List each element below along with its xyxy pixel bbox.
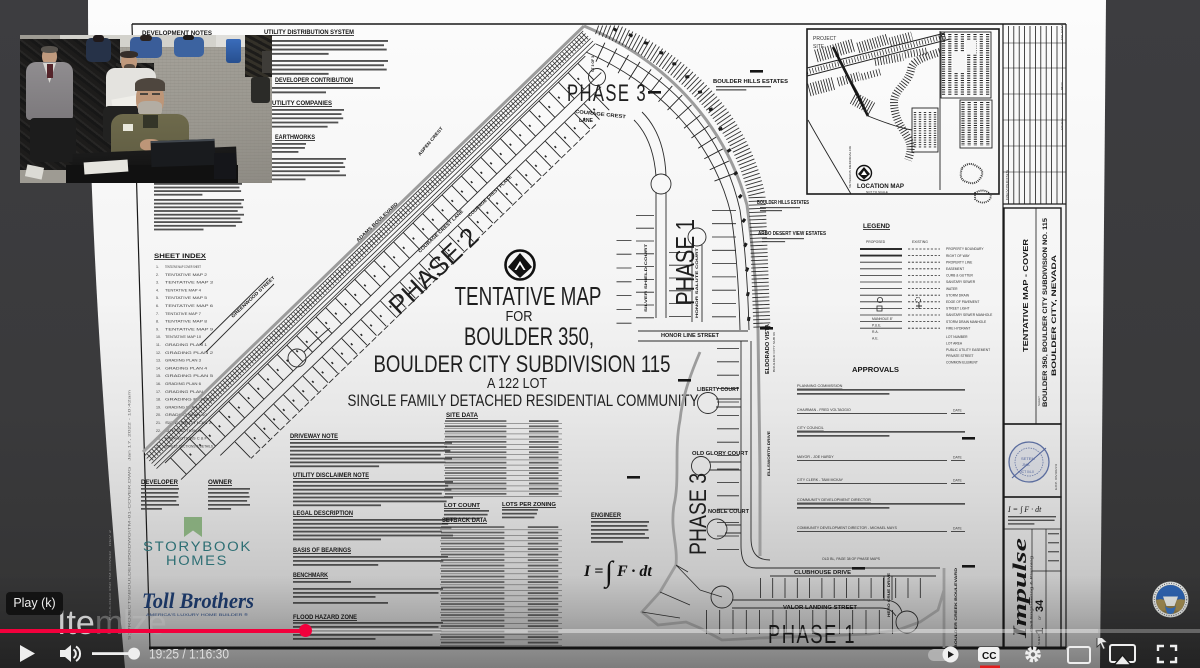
svg-text:TENTATIVE MAP: TENTATIVE MAP — [455, 281, 602, 311]
svg-text:17.: 17. — [156, 390, 161, 394]
svg-text:ENGINEER: ENGINEER — [591, 513, 622, 519]
svg-text:SANITARY SEWER: SANITARY SEWER — [946, 280, 976, 284]
svg-text:1.: 1. — [156, 265, 159, 269]
svg-text:3.: 3. — [156, 281, 159, 285]
svg-text:BOULDER HILLS ESTATES: BOULDER HILLS ESTATES — [757, 200, 810, 206]
svg-text:ARBO DESERT VIEW ESTATES: ARBO DESERT VIEW ESTATES — [758, 231, 827, 237]
svg-text:13.: 13. — [156, 359, 161, 363]
svg-text:21.: 21. — [156, 421, 161, 425]
svg-text:DEVELOPER CONTRIBUTION: DEVELOPER CONTRIBUTION — [275, 77, 353, 84]
svg-text:NOBLE COURT: NOBLE COURT — [708, 509, 749, 515]
svg-text:OLD GLORY COURT: OLD GLORY COURT — [692, 451, 748, 457]
svg-text:SANITARY SEWER MANHOLE: SANITARY SEWER MANHOLE — [946, 313, 993, 317]
svg-text:STORM DRAIN: STORM DRAIN — [946, 293, 970, 297]
svg-text:10.: 10. — [156, 335, 161, 339]
svg-text:CITY COUNCIL: CITY COUNCIL — [797, 426, 824, 430]
svg-text:R.A.: R.A. — [872, 330, 879, 334]
svg-text:PHASE 3: PHASE 3 — [685, 473, 712, 555]
svg-text:LOTS PER ZONING: LOTS PER ZONING — [502, 502, 556, 508]
svg-text:APPROVALS: APPROVALS — [852, 365, 899, 374]
svg-text:GRADING PLAN 5: GRADING PLAN 5 — [165, 374, 213, 378]
svg-text:LOT COUNT: LOT COUNT — [444, 503, 480, 509]
svg-text:NOT TO SCALE: NOT TO SCALE — [866, 190, 888, 194]
svg-text:BY: BY — [1060, 81, 1064, 90]
svg-text:LEGEND: LEGEND — [863, 223, 891, 230]
svg-text:4.: 4. — [156, 288, 159, 292]
svg-text:SHEET INDEX: SHEET INDEX — [154, 253, 207, 260]
svg-text:MAYOR - JOE HARDY: MAYOR - JOE HARDY — [797, 455, 834, 459]
svg-text:GRADING PLAN 6: GRADING PLAN 6 — [165, 382, 201, 386]
svg-text:FIRE HYDRANT: FIRE HYDRANT — [946, 326, 970, 330]
svg-text:OCT 04-0: OCT 04-0 — [1019, 470, 1034, 474]
svg-text:OLD BL, PAGE 38 OF PHASE MAPS: OLD BL, PAGE 38 OF PHASE MAPS — [822, 557, 881, 561]
svg-text:UTILITY COMPANIES: UTILITY COMPANIES — [272, 100, 332, 107]
svg-text:HONOR LINE STREET: HONOR LINE STREET — [661, 333, 719, 339]
svg-text:PROPOSED: PROPOSED — [866, 240, 886, 244]
svg-text:BOULDER CITY, NEVADA: BOULDER CITY, NEVADA — [1051, 254, 1058, 376]
svg-text:5.: 5. — [156, 296, 159, 300]
svg-text:NO. DATE: NO. DATE — [1060, 24, 1064, 40]
svg-text:GRADING PLAN 2: GRADING PLAN 2 — [165, 351, 213, 355]
svg-text:9.: 9. — [156, 327, 159, 331]
svg-text:BOULDER 350, BOULDER CITY SUBD: BOULDER 350, BOULDER CITY SUBDIVISION NO… — [1042, 217, 1049, 407]
svg-text:TENTATIVE MAP COVER SHEET: TENTATIVE MAP COVER SHEET — [165, 265, 202, 269]
svg-text:P.U.E.: P.U.E. — [872, 324, 881, 328]
svg-text:18.: 18. — [156, 398, 161, 402]
svg-text:DATE: DATE — [953, 479, 963, 483]
svg-text:EASEMENT: EASEMENT — [946, 267, 964, 271]
svg-text:GRADING PLAN 3: GRADING PLAN 3 — [165, 359, 201, 363]
svg-text:STORYBOOK: STORYBOOK — [143, 539, 252, 554]
svg-text:UTILITY DISCLAIMER NOTE: UTILITY DISCLAIMER NOTE — [293, 473, 369, 479]
svg-text:EXISTING: EXISTING — [912, 240, 928, 244]
svg-text:TENTATIVE MAP 7: TENTATIVE MAP 7 — [165, 312, 201, 316]
svg-text:16.: 16. — [156, 382, 161, 386]
svg-text:6.: 6. — [156, 304, 159, 308]
svg-text:PLANNING COMMISSION: PLANNING COMMISSION — [797, 384, 843, 388]
svg-text:MANHOLE 8": MANHOLE 8" — [872, 317, 894, 321]
svg-text:SETBACK DATA: SETBACK DATA — [442, 518, 488, 524]
svg-text:DATE: DATE — [953, 456, 963, 460]
svg-text:7.: 7. — [156, 312, 159, 316]
svg-text:PRIVATE STREET: PRIVATE STREET — [946, 354, 974, 358]
svg-text:STREET LIGHT: STREET LIGHT — [946, 307, 970, 311]
svg-text:TENTATIVE MAP 10: TENTATIVE MAP 10 — [165, 335, 201, 339]
svg-text:CURB & GUTTER: CURB & GUTTER — [946, 274, 974, 278]
svg-text:DATE: DATE — [953, 409, 963, 413]
svg-text:BOULDER CITY SUBDIVISION 115: BOULDER CITY SUBDIVISION 115 — [374, 351, 671, 378]
svg-text:CC: CC — [982, 650, 997, 662]
svg-text:14.: 14. — [156, 366, 161, 370]
svg-text:PHASE 3: PHASE 3 — [567, 80, 647, 107]
svg-text:TENTATIVE MAP 5: TENTATIVE MAP 5 — [165, 296, 207, 300]
svg-text:19.: 19. — [156, 405, 161, 409]
svg-text:GRADING PLAN 4: GRADING PLAN 4 — [165, 366, 207, 370]
svg-text:8.: 8. — [156, 320, 159, 324]
svg-text:15.: 15. — [156, 374, 161, 378]
svg-text:DEVELOPER: DEVELOPER — [141, 480, 179, 486]
svg-text:DESC: DESC — [1060, 118, 1064, 130]
svg-text:TENTATIVE MAP 8: TENTATIVE MAP 8 — [165, 320, 207, 324]
svg-text:SITE DATA: SITE DATA — [446, 413, 479, 419]
svg-text:GRADING PLAN 1: GRADING PLAN 1 — [165, 343, 207, 347]
svg-text:PROPERTY LINE: PROPERTY LINE — [946, 260, 973, 264]
svg-text:LOT NUMBER: LOT NUMBER — [946, 335, 968, 339]
svg-text:CHAIRMAN - FRED VOLTAGGIO: CHAIRMAN - FRED VOLTAGGIO — [797, 408, 851, 412]
svg-text:VETERANS MEMORIAL DR: VETERANS MEMORIAL DR — [848, 146, 852, 188]
svg-text:COMMON ELEMENT: COMMON ELEMENT — [946, 361, 978, 365]
svg-text:12.: 12. — [156, 351, 161, 355]
svg-text:TENTATIVE MAP 3: TENTATIVE MAP 3 — [165, 281, 213, 285]
svg-text:COMMUNITY DEVELOPMENT DIRECTOR: COMMUNITY DEVELOPMENT DIRECTOR - MICHAEL… — [797, 526, 897, 530]
svg-text:HOMES: HOMES — [166, 553, 228, 568]
svg-text:A.E.: A.E. — [872, 337, 878, 341]
svg-text:22.: 22. — [156, 429, 161, 433]
svg-text:TENTATIVE MAP 9: TENTATIVE MAP 9 — [165, 327, 213, 331]
svg-text:ELLSWORTH DRIVE: ELLSWORTH DRIVE — [766, 431, 771, 476]
svg-text:EXP. 06/30/23: EXP. 06/30/23 — [1054, 464, 1058, 490]
svg-text:EARTHWORKS: EARTHWORKS — [275, 134, 315, 141]
svg-text:PROJECT: PROJECT — [813, 36, 836, 42]
svg-text:CITY CLERK - TAMI MCKAY: CITY CLERK - TAMI MCKAY — [797, 478, 844, 482]
svg-text:BOULDER 350,: BOULDER 350, — [464, 323, 594, 351]
svg-text:A 122 LOT: A 122 LOT — [487, 375, 547, 392]
svg-text:BASIS OF BEARINGS: BASIS OF BEARINGS — [293, 548, 351, 554]
svg-text:LANE: LANE — [579, 118, 594, 124]
svg-text:LIBERTY COURT: LIBERTY COURT — [697, 387, 739, 393]
svg-text:DRIVEWAY NOTE: DRIVEWAY NOTE — [290, 434, 338, 440]
svg-text:LEGAL DESCRIPTION: LEGAL DESCRIPTION — [293, 511, 353, 517]
svg-text:TENTATIVE MAP 6: TENTATIVE MAP 6 — [165, 304, 213, 308]
svg-text:19:25 / 1:16:30: 19:25 / 1:16:30 — [149, 647, 229, 662]
svg-text:RIGHT OF WAY: RIGHT OF WAY — [946, 254, 971, 258]
svg-text:EDGE OF PAVEMENT: EDGE OF PAVEMENT — [946, 300, 979, 304]
svg-text:UTILITY DISTRIBUTION SYSTEM: UTILITY DISTRIBUTION SYSTEM — [264, 29, 354, 36]
svg-text:WATER: WATER — [946, 287, 958, 291]
svg-text:BOULDER HILLS ESTATES: BOULDER HILLS ESTATES — [713, 79, 788, 85]
svg-text:STORM DRAIN MANHOLE: STORM DRAIN MANHOLE — [946, 320, 987, 324]
svg-text:TENTATIVE MAP 4: TENTATIVE MAP 4 — [165, 288, 201, 292]
svg-text:I = ∫ F · dt: I = ∫ F · dt — [1007, 505, 1042, 514]
svg-text:CT 3 OF 3: CT 3 OF 3 — [591, 56, 595, 72]
svg-text:TENTATIVE MAP - COVER: TENTATIVE MAP - COVER — [1023, 239, 1030, 352]
svg-text:PUBLIC UTILITY EASEMENT: PUBLIC UTILITY EASEMENT — [946, 348, 990, 352]
svg-text:GRADING PLAN 7: GRADING PLAN 7 — [165, 390, 207, 394]
svg-text:OWNER: OWNER — [208, 480, 233, 486]
svg-text:11.: 11. — [156, 343, 161, 347]
svg-text:20.: 20. — [156, 413, 161, 417]
svg-text:ELDORADO VISTA: ELDORADO VISTA — [765, 324, 771, 374]
svg-text:REVISIONS: REVISIONS — [1005, 170, 1009, 200]
svg-text:DATE: DATE — [953, 527, 963, 531]
svg-text:2.: 2. — [156, 273, 159, 277]
svg-text:LOT AREA: LOT AREA — [946, 341, 963, 345]
svg-text:PROPERTY BOUNDARY: PROPERTY BOUNDARY — [946, 247, 984, 251]
svg-text:SINGLE FAMILY DETACHED RESIDEN: SINGLE FAMILY DETACHED RESIDENTIAL COMMU… — [348, 391, 699, 410]
svg-text:COMMUNITY DEVELOPMENT DIRECTOR: COMMUNITY DEVELOPMENT DIRECTOR — [797, 498, 871, 502]
svg-text:TENTATIVE MAP 2: TENTATIVE MAP 2 — [165, 273, 207, 277]
svg-text:SHEET: SHEET — [1037, 396, 1041, 406]
svg-text:PHASE 1: PHASE 1 — [670, 219, 700, 305]
svg-text:BOULDER CITY SUB 96: BOULDER CITY SUB 96 — [772, 332, 776, 372]
